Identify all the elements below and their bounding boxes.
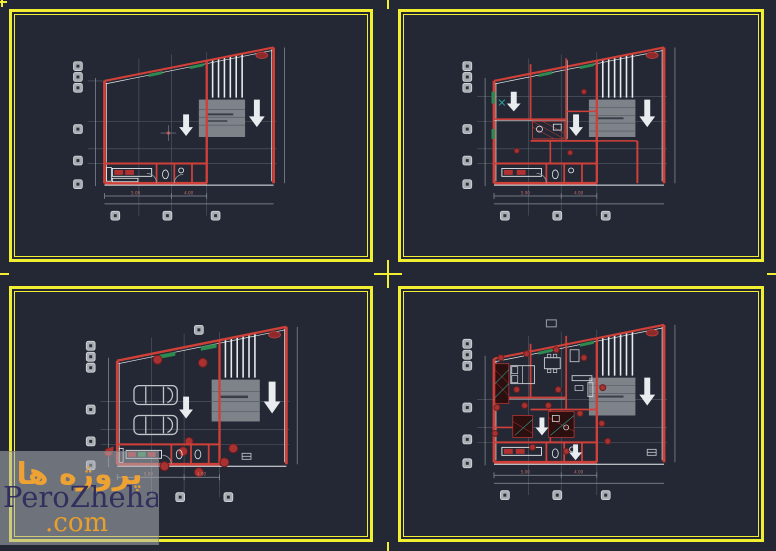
watermark-badge: پروژه ها PeroZheha .com bbox=[0, 451, 159, 545]
ramp-hatch bbox=[225, 333, 254, 377]
center-cross-mark bbox=[374, 260, 402, 288]
sheet-inner-border: 5.00 4.00 bbox=[403, 14, 759, 257]
dimension-lines: 5.00 4.00 bbox=[494, 191, 664, 204]
sheet-ground-floor-plan: 5.00 4.00 bbox=[398, 9, 764, 262]
dim-label-a: 5.00 bbox=[521, 191, 531, 196]
interior-basement bbox=[104, 125, 206, 183]
sheet-inner-border: 5.00 4.00 bbox=[14, 14, 368, 257]
basement-plan-drawing: 5.00 4.00 bbox=[15, 15, 367, 256]
corner-mark bbox=[0, 0, 7, 7]
dim-label-b: 4.00 bbox=[197, 472, 207, 477]
entry-marker bbox=[256, 52, 268, 58]
ramp-hatch bbox=[603, 331, 633, 375]
ground-floor-plan-drawing: 5.00 4.00 bbox=[404, 15, 758, 256]
dim-label-b: 4.00 bbox=[574, 470, 584, 475]
entry-marker bbox=[269, 332, 281, 338]
dim-label-a: 5.00 bbox=[521, 470, 531, 475]
furnished-plan-drawing: 5.00 4.00 bbox=[404, 292, 758, 536]
entry-marker bbox=[646, 330, 658, 336]
cad-drawing-canvas: 5.00 4.00 bbox=[0, 0, 776, 551]
dim-label-a: 5.00 bbox=[131, 191, 141, 196]
sheet-basement-plan: 5.00 4.00 bbox=[9, 9, 373, 262]
sheet-furnished-plan: 5.00 4.00 bbox=[398, 286, 764, 542]
ramp-hatch bbox=[603, 54, 633, 98]
dimension-lines: 5.00 4.00 bbox=[104, 191, 273, 204]
watermark-brand-text: PeroZheha bbox=[3, 484, 158, 510]
ramp-hatch bbox=[213, 54, 242, 98]
dim-label-b: 4.00 bbox=[574, 191, 584, 196]
parked-cars bbox=[134, 386, 177, 435]
sheet-inner-border: 5.00 4.00 bbox=[403, 291, 759, 537]
dim-label-b: 4.00 bbox=[184, 191, 194, 196]
outline-walls bbox=[494, 325, 664, 464]
entry-marker bbox=[646, 52, 658, 58]
dimension-lines: 5.00 4.00 bbox=[494, 470, 664, 483]
